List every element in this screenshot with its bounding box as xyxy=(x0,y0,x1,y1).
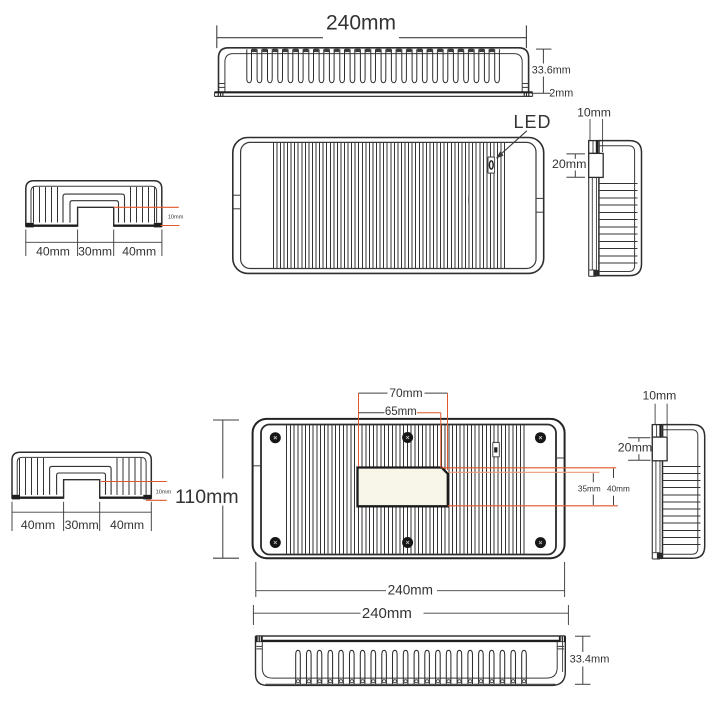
svg-text:40mm: 40mm xyxy=(607,485,630,494)
svg-text:10mm: 10mm xyxy=(156,489,172,495)
svg-text:2mm: 2mm xyxy=(549,88,573,100)
svg-text:240mm: 240mm xyxy=(388,583,433,598)
svg-text:20mm: 20mm xyxy=(552,157,586,171)
svg-text:40mm: 40mm xyxy=(21,518,55,532)
svg-text:30mm: 30mm xyxy=(78,245,112,259)
svg-text:33.4mm: 33.4mm xyxy=(570,653,610,665)
svg-text:70mm: 70mm xyxy=(389,386,422,400)
svg-text:110mm: 110mm xyxy=(175,486,239,508)
svg-text:10mm: 10mm xyxy=(577,105,611,119)
svg-text:35mm: 35mm xyxy=(578,485,601,494)
svg-text:40mm: 40mm xyxy=(110,518,144,532)
svg-text:10mm: 10mm xyxy=(168,215,184,221)
svg-text:LED: LED xyxy=(513,112,551,132)
svg-text:65mm: 65mm xyxy=(385,406,417,418)
svg-text:30mm: 30mm xyxy=(65,518,99,532)
svg-text:10mm: 10mm xyxy=(642,389,676,403)
svg-text:240mm: 240mm xyxy=(362,605,412,622)
svg-text:240mm: 240mm xyxy=(326,12,396,35)
svg-text:33.6mm: 33.6mm xyxy=(532,65,571,77)
svg-text:20mm: 20mm xyxy=(618,441,652,455)
svg-text:40mm: 40mm xyxy=(122,245,156,259)
svg-text:40mm: 40mm xyxy=(36,245,70,259)
